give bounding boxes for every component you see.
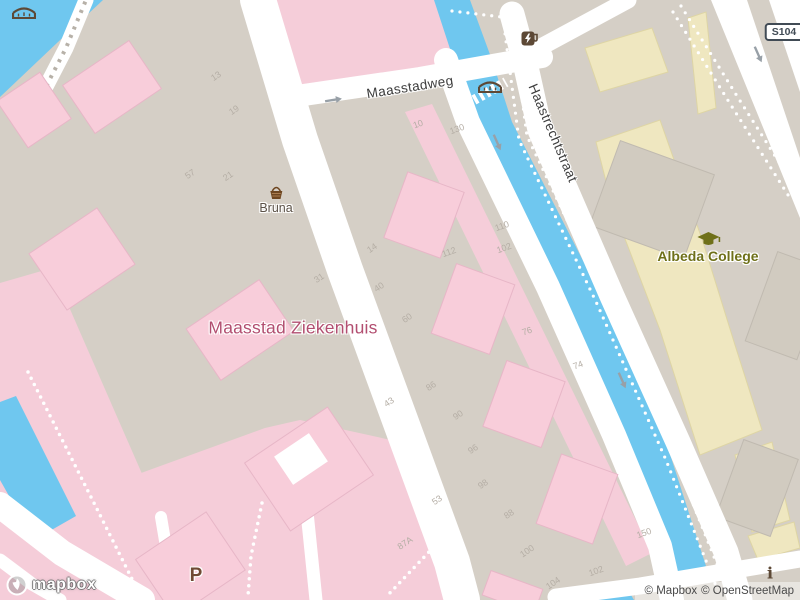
mapbox-logo-text: mapbox — [32, 576, 96, 594]
mapbox-logo[interactable]: mapbox — [6, 574, 96, 596]
attribution-osm-link[interactable]: © OpenStreetMap — [701, 585, 794, 597]
mapbox-logo-icon — [6, 574, 28, 596]
attribution-mapbox-link[interactable]: © Mapbox — [645, 585, 698, 597]
attribution-bar: © Mapbox© OpenStreetMap — [635, 582, 800, 600]
map-tiles — [0, 0, 800, 600]
map-canvas[interactable]: Maasstadweg Haastrechtstraat Maasstad Zi… — [0, 0, 800, 600]
